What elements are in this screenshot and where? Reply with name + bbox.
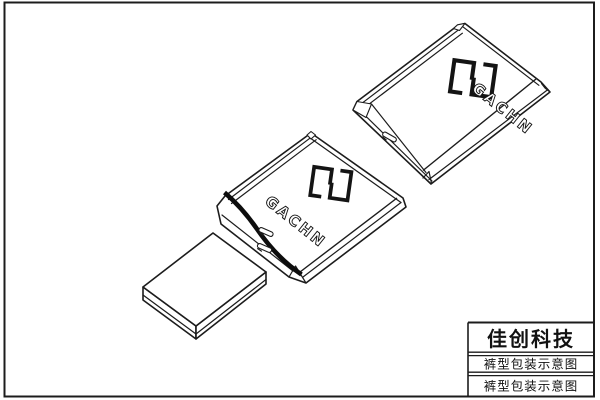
title-block: 佳创科技 裤型包装示意图 裤型包装示意图 [468, 323, 594, 397]
drawing-title-text-2: 裤型包装示意图 [484, 379, 579, 394]
drawing-title-text: 裤型包装示意图 [484, 357, 579, 372]
patent-drawing-page: GACHN GACHN [0, 0, 600, 400]
drawing-canvas: GACHN GACHN [0, 0, 600, 400]
company-name-text: 佳创科技 [487, 327, 575, 351]
